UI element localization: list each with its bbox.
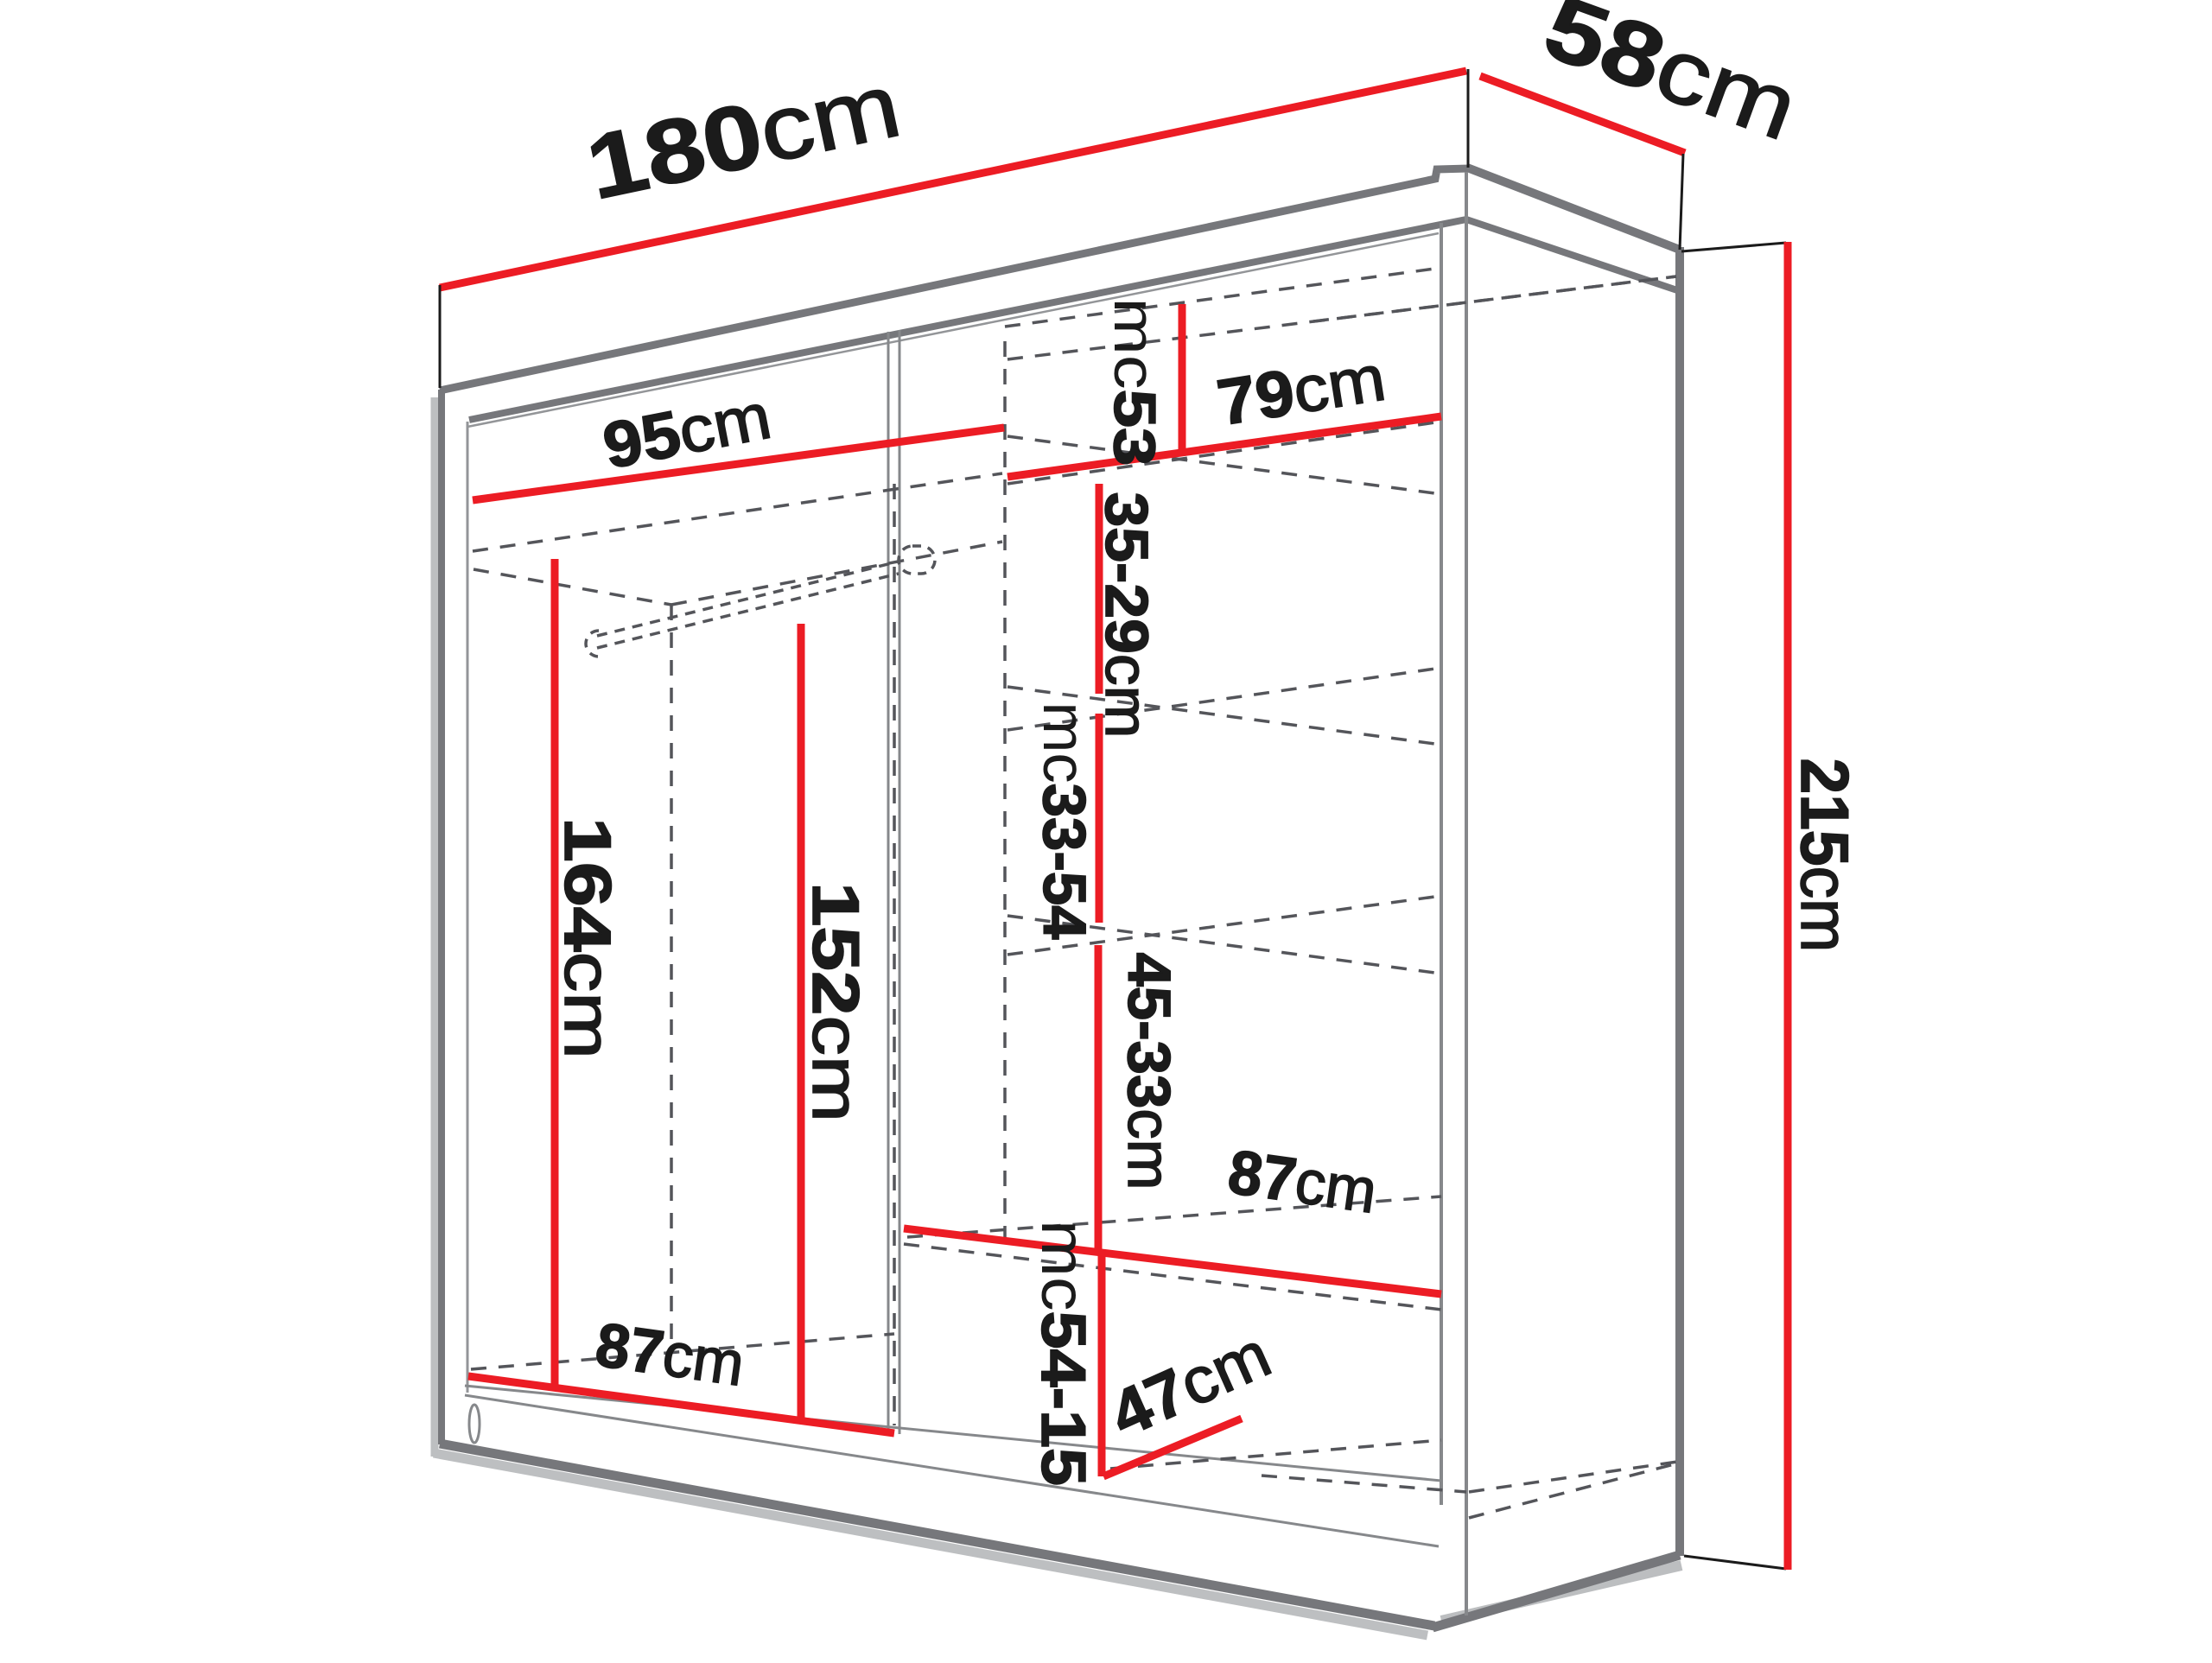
svg-text:152cm: 152cm: [798, 882, 872, 1122]
svg-text:45-33cm: 45-33cm: [1116, 953, 1183, 1190]
svg-text:164cm: 164cm: [550, 817, 624, 1059]
svg-text:215cm: 215cm: [1787, 759, 1863, 953]
svg-text:mc33-54: mc33-54: [1031, 702, 1098, 940]
svg-text:35-29cm: 35-29cm: [1093, 492, 1160, 739]
svg-text:mc54-15: mc54-15: [1028, 1220, 1097, 1486]
svg-text:mc53: mc53: [1102, 298, 1167, 467]
